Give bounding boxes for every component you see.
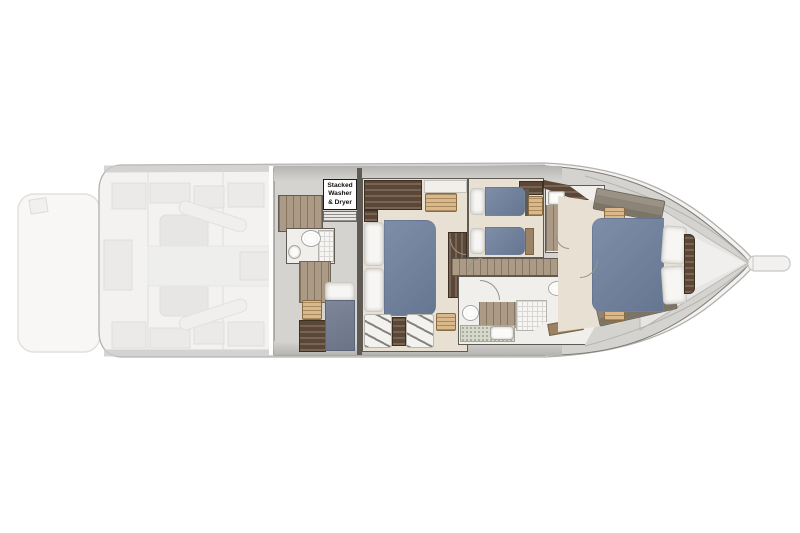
vip-bed-duvet: [592, 218, 664, 312]
master-wicker-bench-bottom: [436, 313, 456, 331]
vip-headboard: [684, 234, 695, 294]
master-top-cabinet: [424, 180, 467, 193]
master-wicker-bench-top: [425, 193, 457, 212]
washer-dryer-unit: [323, 211, 357, 222]
twin-bed2-pillow: [470, 228, 485, 254]
crew-stairs: [278, 195, 323, 232]
day-head-sink-icon: [490, 326, 514, 340]
master-side-table: [392, 317, 406, 346]
anchor-sprit: [748, 256, 790, 271]
crew-berth-pillow: [325, 282, 355, 301]
master-armchair-right: [406, 314, 434, 348]
crew-wardrobe: [299, 320, 326, 352]
crew-step-stool: [302, 300, 322, 320]
master-bed-pillow-2: [364, 268, 384, 312]
master-top-wardrobe: [364, 180, 422, 210]
master-armchair-left: [364, 314, 392, 348]
yacht-floorplan: Stacked Washer & Dryer: [0, 0, 800, 533]
crew-head-sink-icon: [288, 245, 301, 259]
master-bed-duvet: [384, 220, 436, 316]
twin-wicker-chest: [528, 196, 543, 216]
twin-bed2-duvet: [485, 227, 525, 255]
twin-bed1-duvet: [485, 187, 525, 216]
crew-head-toilet-icon: [301, 230, 321, 247]
swim-platform-hatch: [29, 198, 48, 214]
twin-bed2-footboard: [525, 228, 534, 255]
engine-room-ghost-equipment: [104, 168, 272, 354]
day-head-toilet-icon: [462, 305, 479, 321]
master-nightstand-top: [364, 210, 378, 222]
section-gap: [269, 166, 273, 355]
crew-berth-mattress: [325, 300, 355, 351]
twin-bed1-pillow: [470, 188, 485, 215]
washer-label-line3: & Dryer: [324, 199, 356, 207]
master-bed-pillow-1: [364, 222, 384, 266]
swim-platform: [18, 194, 100, 352]
washer-label-line2: Washer: [324, 190, 356, 198]
washer-label-line1: Stacked: [324, 182, 356, 190]
washer-dryer-label: Stacked Washer & Dryer: [323, 179, 357, 210]
